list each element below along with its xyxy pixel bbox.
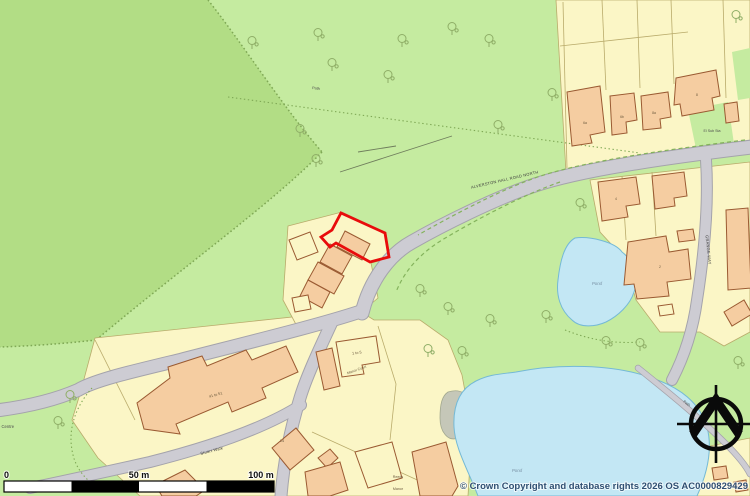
building [292, 295, 311, 312]
house-name: Reeds [393, 475, 404, 479]
house-number: 4 [615, 197, 617, 201]
building [712, 466, 728, 480]
house-number: 2 [659, 265, 661, 269]
copyright-text: © Crown Copyright and database rights 20… [460, 481, 748, 492]
scale-mid-label: 50 m [129, 470, 150, 480]
house-number: 6a [583, 121, 587, 125]
house-number: 8 [696, 93, 698, 97]
scale-bar-segment [72, 481, 140, 492]
map-screenshot: ALVERSTON HALL ROAD NORTH GRANGE WAY Stu… [0, 0, 750, 496]
pond-large [454, 366, 710, 496]
el-sub-sta-label: El Sub Sta [704, 129, 721, 133]
pond-label: Pond [512, 468, 523, 473]
house-name: Manor [393, 487, 404, 491]
scale-full-label: 100 m [248, 470, 274, 480]
pond-label: Pond [592, 281, 603, 286]
building [677, 229, 695, 242]
building [724, 102, 739, 123]
map-canvas: ALVERSTON HALL ROAD NORTH GRANGE WAY Stu… [0, 0, 750, 496]
building [658, 304, 674, 316]
house-number: 8a [652, 111, 656, 115]
welfare-centre-label: Welfare Centre [0, 424, 15, 429]
building [726, 208, 750, 290]
house-number: 6b [620, 115, 624, 119]
scale-bar-segment [207, 481, 275, 492]
house-number: 14 [280, 439, 284, 443]
scale-zero-label: 0 [4, 470, 9, 480]
